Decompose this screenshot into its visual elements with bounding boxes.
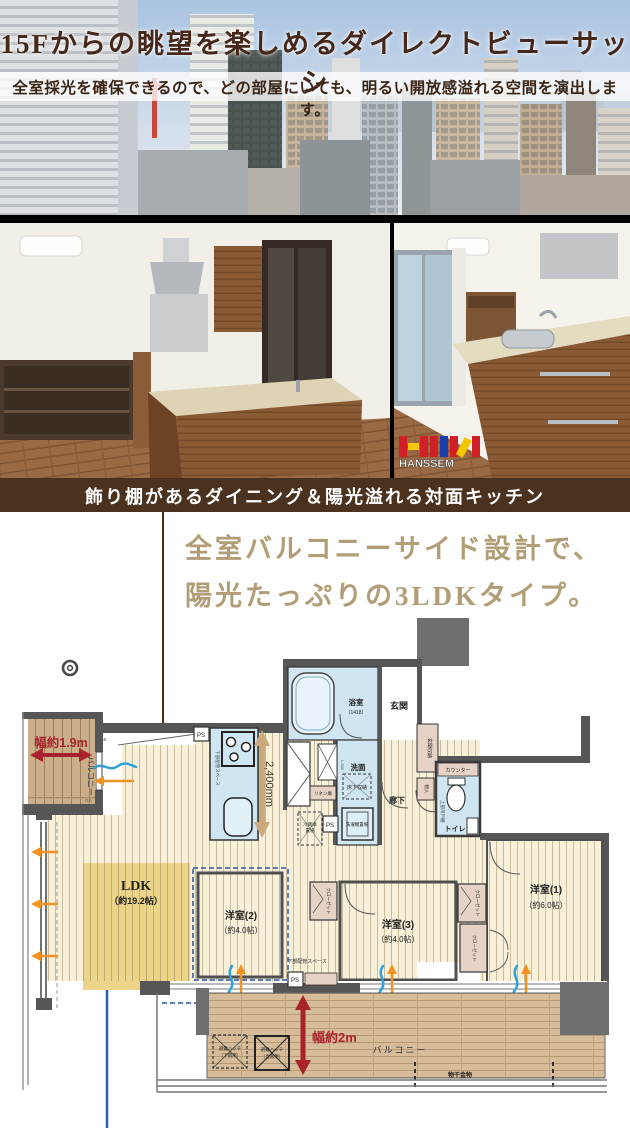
room2-size: （約4.0帖） xyxy=(219,925,262,935)
lead-line2: 陽光たっぷりの3LDKタイプ。 xyxy=(185,573,605,620)
photo-left-dining-kitchen xyxy=(0,223,390,478)
toilet-label: トイレ xyxy=(445,825,466,833)
balcony-left: 幅約1.9m バルコニー GB GA xyxy=(22,712,107,815)
genkan-storage-label: 玄関収納 xyxy=(426,738,433,758)
lead-line1: 全室バルコニーサイド設計で、 xyxy=(185,526,605,573)
lead-heading: 全室バルコニーサイド設計で、 陽光たっぷりの3LDKタイプ。 xyxy=(185,526,605,620)
dim-width-1-9m: 幅約1.9m xyxy=(34,735,88,750)
laundry-label: 洗濯機置場 xyxy=(346,821,369,828)
bath-label: 浴室 xyxy=(349,697,364,707)
hatch-b-line2: （当階用） xyxy=(261,1053,284,1060)
photo-right-kitchen xyxy=(394,223,630,478)
closet-label-3: クローゼット xyxy=(471,935,478,962)
room3-size: （約4.0帖） xyxy=(376,934,419,944)
ps-label-kitchen: PS xyxy=(197,733,205,739)
dim-2400mm: 2,400mm xyxy=(263,761,275,807)
bath-size: （1418） xyxy=(345,710,366,716)
closet-label-2: クローゼット xyxy=(474,890,481,917)
fridge-label1: 冷蔵庫 xyxy=(303,821,317,828)
ga-label: GA xyxy=(85,798,92,803)
ps-label-south: PS xyxy=(291,978,299,984)
monohoshi-label: 物干金物 xyxy=(448,1071,472,1079)
hatch-a-line2: （下階用） xyxy=(219,1052,242,1059)
ldk-size: （約19.2帖） xyxy=(109,895,163,906)
pipe-space-south: 下部配管スペース xyxy=(287,958,326,965)
l900-label: L-900 xyxy=(340,760,345,771)
caption-text: 飾り棚があるダイニング＆陽光溢れる対面キッチン xyxy=(0,483,630,509)
counter-label: カウンター xyxy=(445,767,470,774)
sink xyxy=(224,798,252,836)
compass-icon xyxy=(63,661,77,675)
monoire-label: 物入 xyxy=(423,785,430,794)
hero-subtitle: 全室採光を確保できるので、どの部屋にいても、明るい開放感溢れる空間を演出します。 xyxy=(0,76,630,120)
page: 15Fからの眺望を楽しめるダイレクトビューサッシ 全室採光を確保できるので、どの… xyxy=(0,0,630,1130)
hatch-a-line1: 避難ハッチ xyxy=(219,1045,242,1052)
hanssem-wordmark: HANSSEM xyxy=(399,458,454,470)
room1-label: 洋室(1) xyxy=(530,883,562,896)
underfloor-label: 床下収納 xyxy=(347,784,367,791)
linen-label: リネン庫 xyxy=(314,790,332,797)
upper-cabinet-label: 上部吊戸棚 xyxy=(439,800,446,823)
room1-size: （約6.0帖） xyxy=(524,900,567,910)
balcony-bottom-label: バルコニー xyxy=(373,1045,428,1055)
wall-block-top xyxy=(417,618,469,666)
gb-label: GB xyxy=(100,737,107,742)
pipe-space-kitchen: 下部配管スペース xyxy=(214,750,221,786)
balcony-left-label: バルコニー xyxy=(86,756,95,796)
fridge-label2: 置場 xyxy=(306,827,315,834)
hatch-b-line1: 避難ハッチ xyxy=(261,1046,284,1053)
genkan-label: 玄関 xyxy=(390,700,408,711)
closet-label-1: クローゼット xyxy=(325,888,332,915)
kitchen-photos: HANSSEM xyxy=(0,215,630,478)
ps-label-mid: PS xyxy=(326,823,334,829)
senmen-label: 洗面 xyxy=(351,762,366,772)
room2-label: 洋室(2) xyxy=(225,909,257,922)
room3-label: 洋室(3) xyxy=(382,918,414,931)
dim-width-2m: 幅約2m xyxy=(312,1030,357,1045)
ldk-label: LDK xyxy=(121,879,151,894)
